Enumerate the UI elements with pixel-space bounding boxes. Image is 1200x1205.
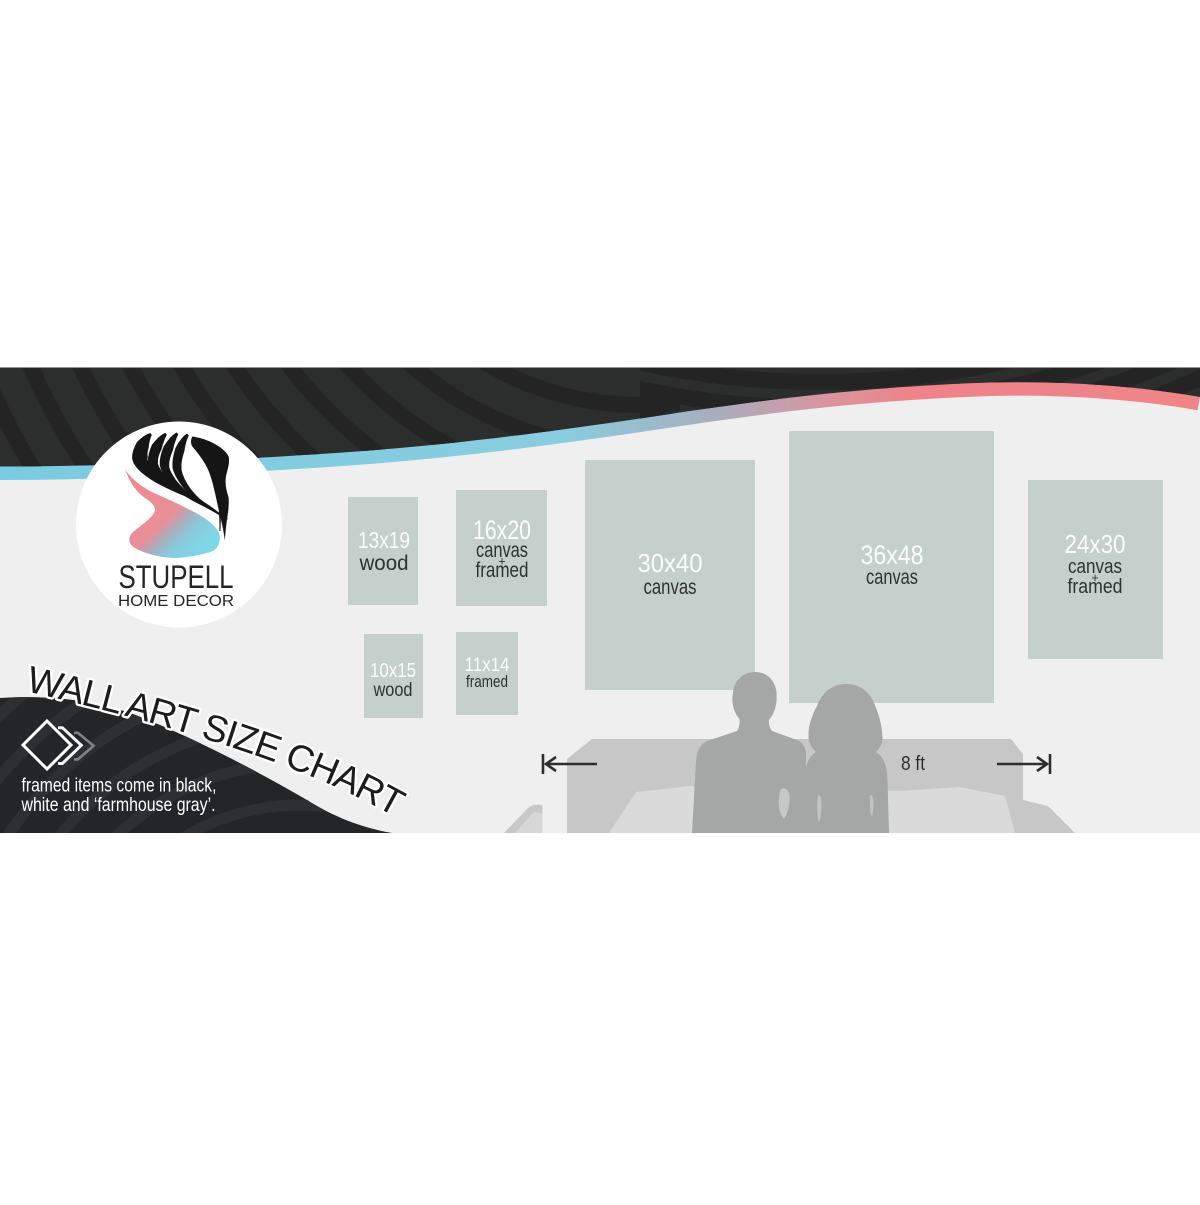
svg-text:STUPELL: STUPELL <box>119 559 234 595</box>
svg-text:24x30: 24x30 <box>1065 529 1126 559</box>
svg-text:13x19: 13x19 <box>358 527 410 553</box>
svg-text:framed: framed <box>1068 576 1123 598</box>
svg-text:wood: wood <box>359 552 409 575</box>
svg-text:10x15: 10x15 <box>370 660 416 682</box>
svg-text:canvas: canvas <box>644 576 697 599</box>
svg-text:white and ‘farmhouse gray’.: white and ‘farmhouse gray’. <box>21 795 216 816</box>
svg-text:framed: framed <box>476 559 529 582</box>
svg-text:canvas: canvas <box>866 566 918 589</box>
svg-text:framed items come in black,: framed items come in black, <box>22 776 217 797</box>
svg-text:framed: framed <box>466 672 508 691</box>
svg-text:8 ft: 8 ft <box>901 753 925 775</box>
svg-text:wood: wood <box>373 680 413 701</box>
svg-text:HOME DECOR: HOME DECOR <box>118 593 234 610</box>
svg-text:30x40: 30x40 <box>638 548 703 578</box>
